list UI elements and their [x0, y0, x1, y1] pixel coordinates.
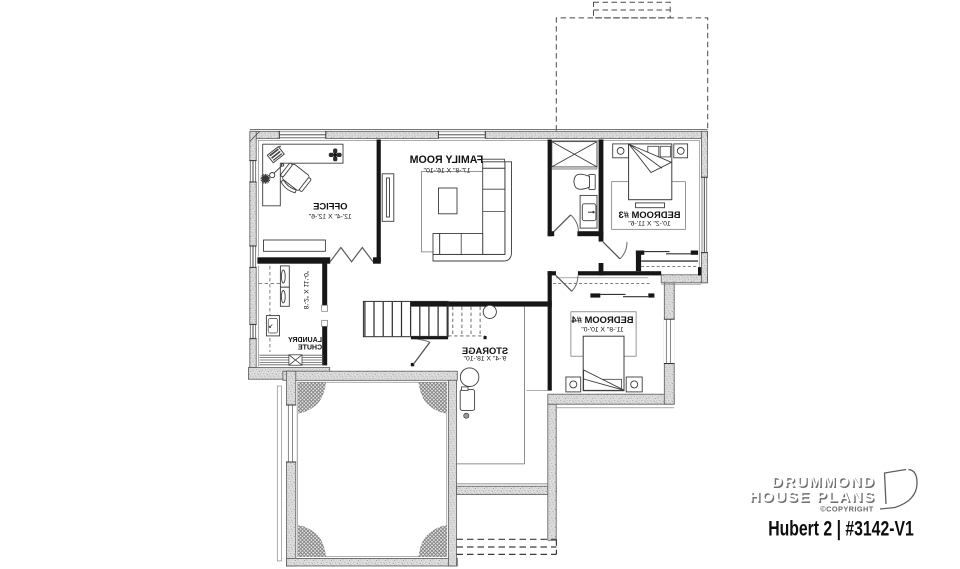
svg-text:STORAGE: STORAGE — [462, 345, 508, 356]
svg-text:©COPYRIGHT: ©COPYRIGHT — [820, 505, 873, 514]
svg-text:8'-2" X 11'-0": 8'-2" X 11'-0" — [302, 270, 309, 309]
svg-text:BEDROOM #4: BEDROOM #4 — [571, 314, 634, 325]
svg-text:17'-8" X 16'-10": 17'-8" X 16'-10" — [423, 167, 470, 174]
svg-text:9'-4" X 18'-10": 9'-4" X 18'-10" — [463, 356, 507, 363]
svg-text:11'-8" X 10'-0": 11'-8" X 10'-0" — [581, 326, 624, 333]
svg-text:10'-2" X 11'-6": 10'-2" X 11'-6" — [628, 220, 671, 227]
svg-text:12'-4" X 12'-6": 12'-4" X 12'-6" — [308, 213, 352, 220]
svg-text:LAUNDRY: LAUNDRY — [288, 337, 322, 344]
svg-text:CHUTE: CHUTE — [298, 344, 322, 351]
svg-text:OFFICE: OFFICE — [313, 201, 347, 212]
svg-text:FAMILY ROOM: FAMILY ROOM — [410, 154, 484, 166]
svg-text:HOUSE PLANS: HOUSE PLANS — [749, 489, 875, 506]
svg-text:Hubert 2 | #3142-V1: Hubert 2 | #3142-V1 — [768, 518, 914, 541]
svg-text:BEDROOM #3: BEDROOM #3 — [619, 209, 681, 220]
